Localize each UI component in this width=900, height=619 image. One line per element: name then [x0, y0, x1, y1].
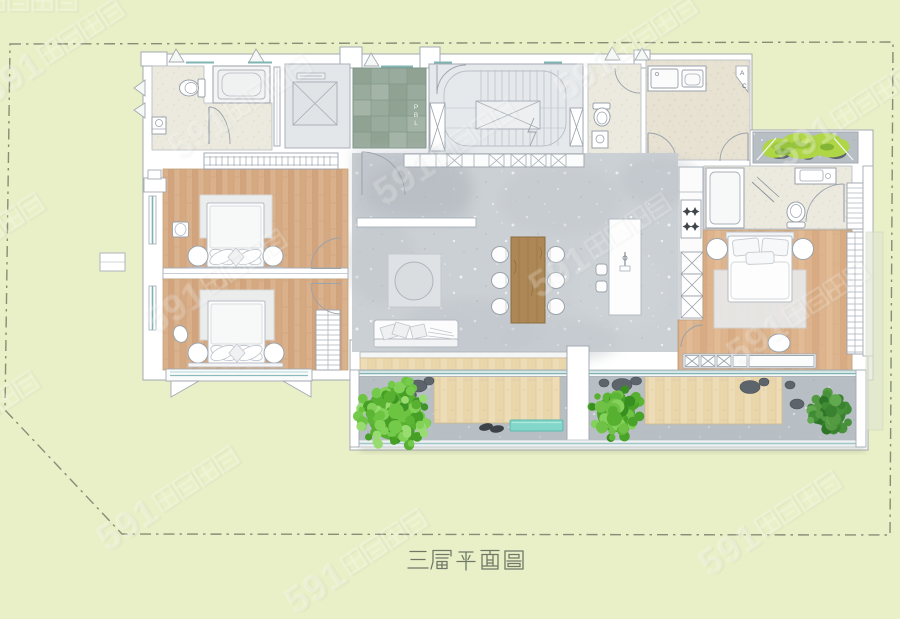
svg-text:A: A	[740, 70, 745, 77]
svg-text:B: B	[414, 112, 418, 119]
svg-text:P: P	[414, 104, 418, 111]
svg-text:L: L	[414, 120, 418, 127]
svg-text:C: C	[742, 83, 747, 90]
